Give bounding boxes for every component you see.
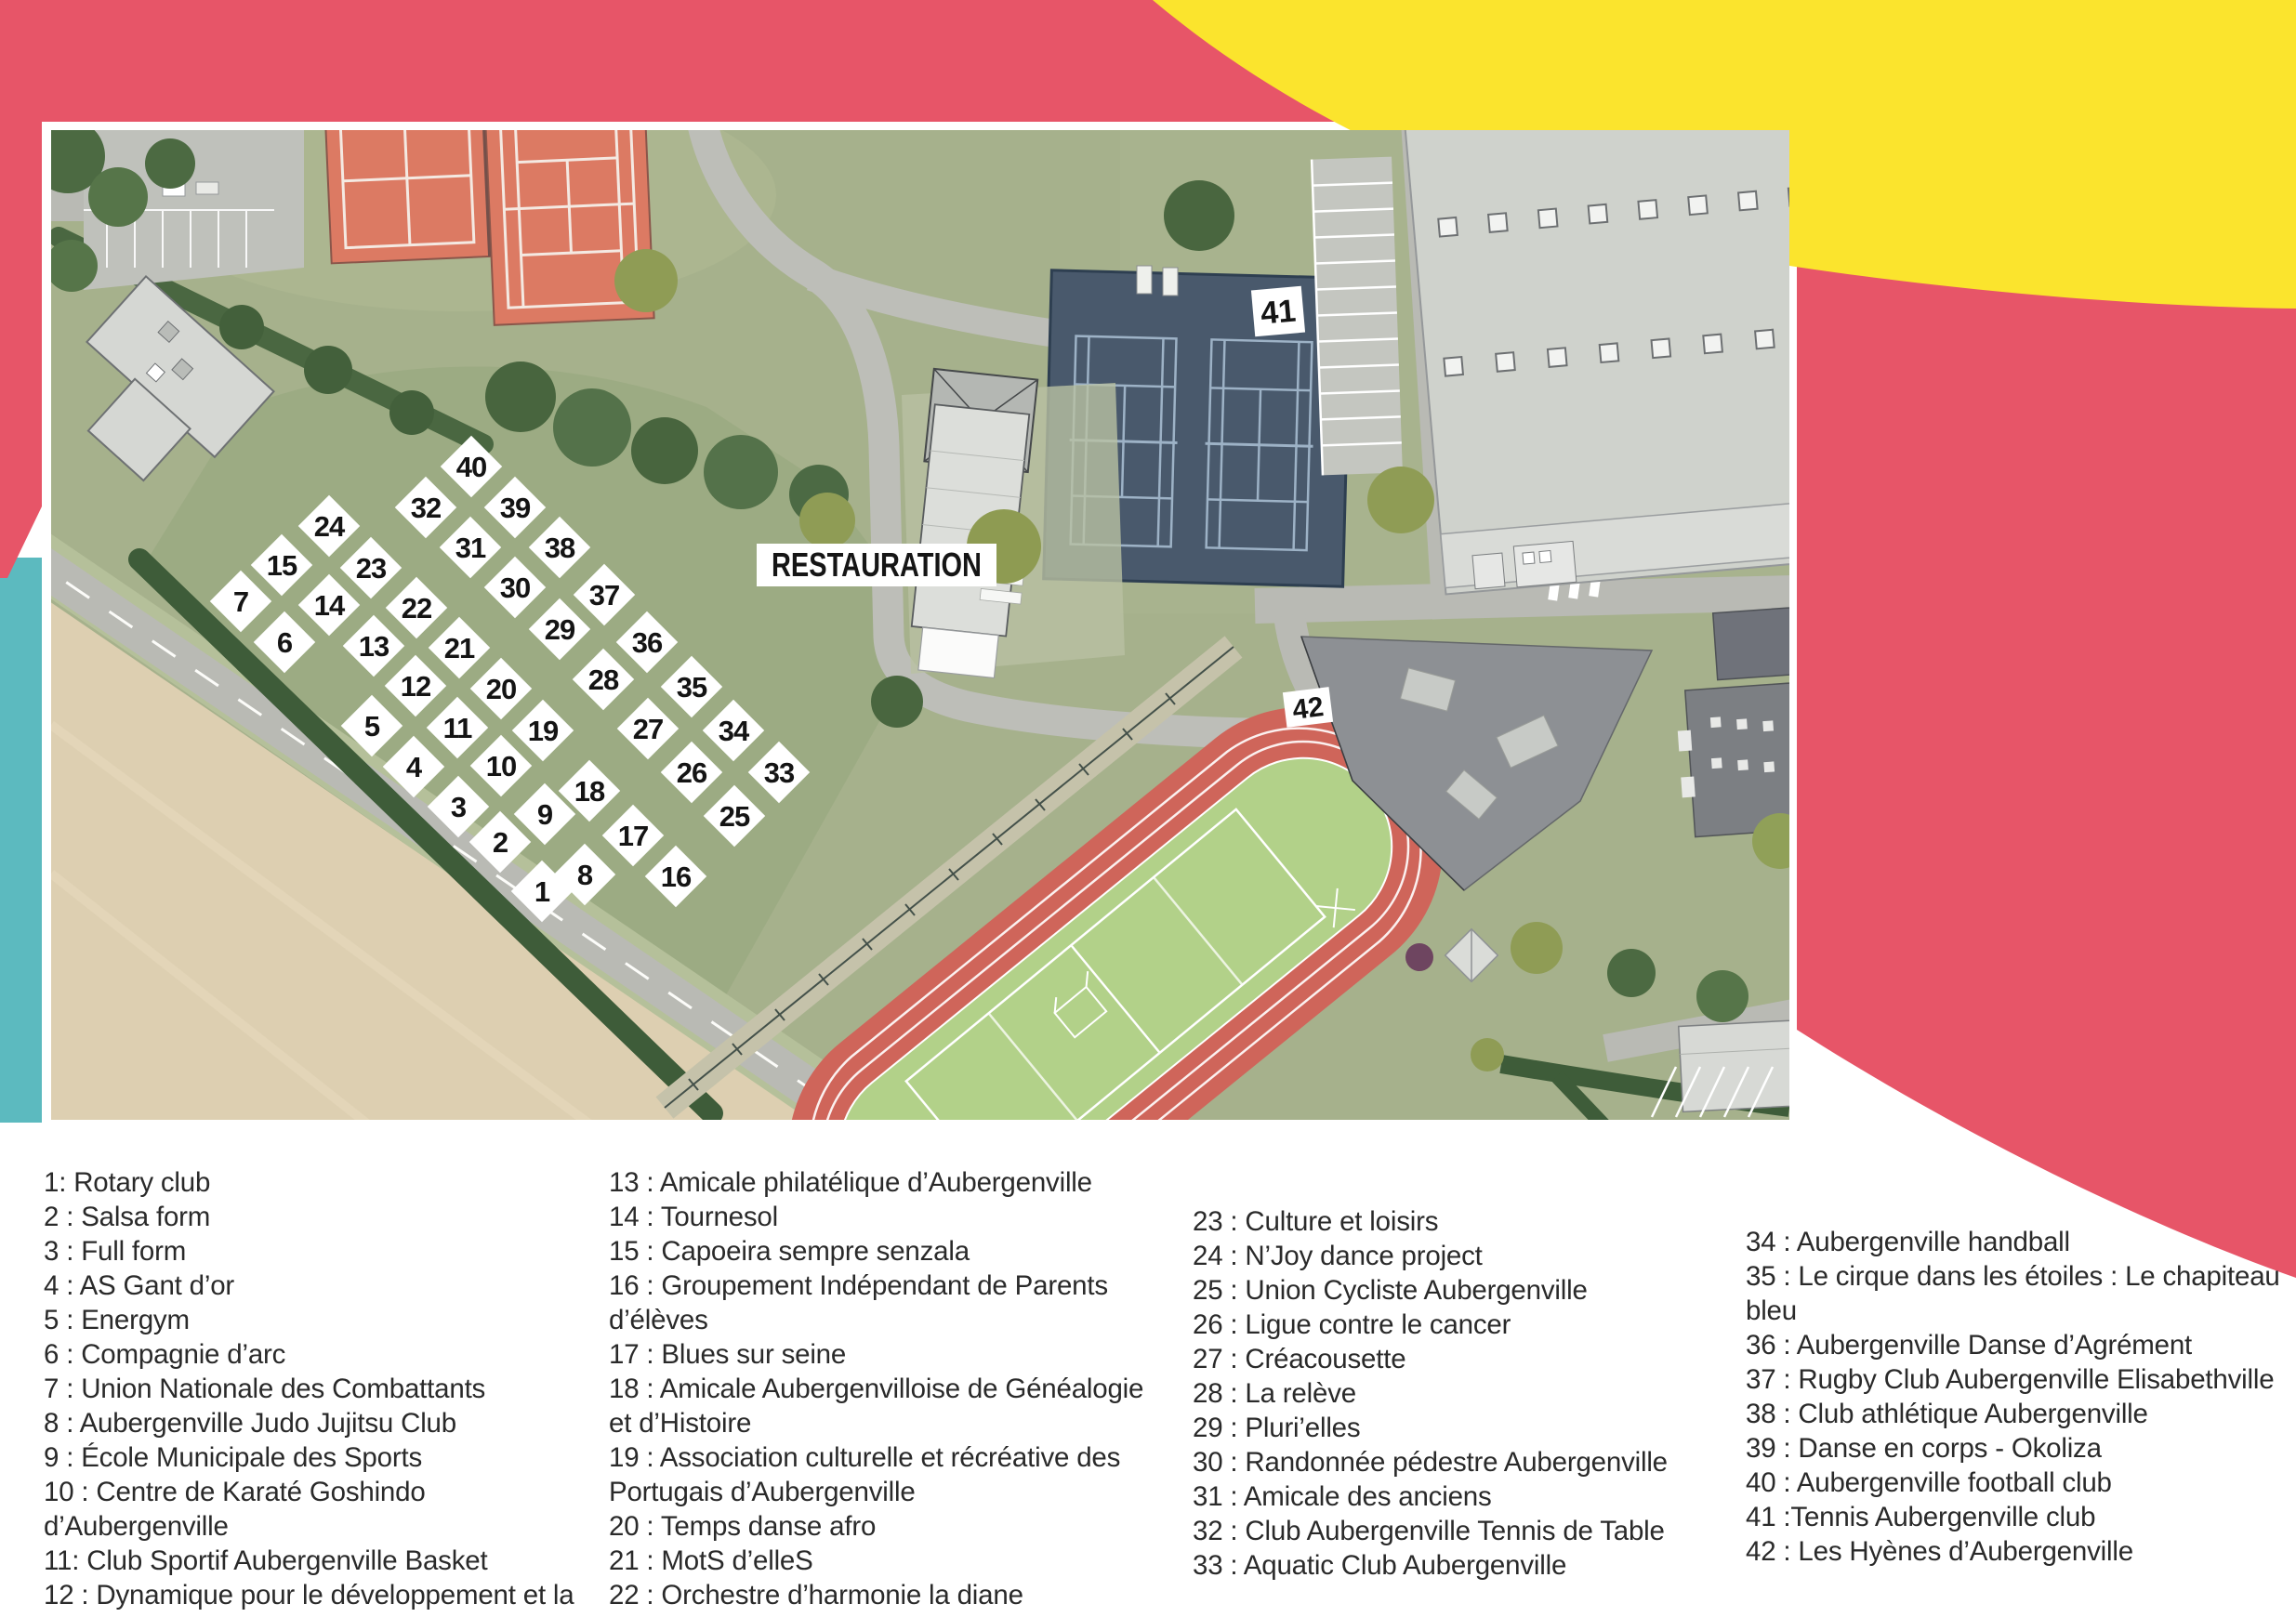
legend-item: 42 : Les Hyènes d’Aubergenville [1746, 1534, 2287, 1569]
legend-item: 11: Club Sportif Aubergenville Basket [44, 1544, 601, 1578]
legend-item: 28 : La relève [1193, 1376, 1699, 1411]
legend-item: 7 : Union Nationale des Combattants [44, 1372, 601, 1406]
legend-item: 29 : Pluri’elles [1193, 1411, 1699, 1445]
legend-item: 12 : Dynamique pour le développement et … [44, 1578, 601, 1617]
legend-column-2: 13 : Amicale philatélique d’Aubergenvill… [609, 1165, 1167, 1612]
legend-column-3: 23 : Culture et loisirs24 : N’Joy dance … [1193, 1204, 1699, 1583]
legend-item: 26 : Ligue contre le cancer [1193, 1308, 1699, 1342]
legend-item: 38 : Club athlétique Aubergenville [1746, 1397, 2287, 1431]
legend-item: 40 : Aubergenville football club [1746, 1466, 2287, 1500]
legend-item: 10 : Centre de Karaté Goshindo d’Auberge… [44, 1475, 601, 1544]
legend-item: 4 : AS Gant d’or [44, 1269, 601, 1303]
legend-item: 2 : Salsa form [44, 1200, 601, 1234]
legend-item: 24 : N’Joy dance project [1193, 1239, 1699, 1273]
legend-item: 23 : Culture et loisirs [1193, 1204, 1699, 1239]
legend-item: 36 : Aubergenville Danse d’Agrément [1746, 1328, 2287, 1362]
legend-item: 6 : Compagnie d’arc [44, 1337, 601, 1372]
legend-item: 39 : Danse en corps - Okoliza [1746, 1431, 2287, 1466]
legend-item: 14 : Tournesol [609, 1200, 1167, 1234]
legend-item: 17 : Blues sur seine [609, 1337, 1167, 1372]
legend-item: 22 : Orchestre d’harmonie la diane [609, 1578, 1167, 1612]
legend-item: 1: Rotary club [44, 1165, 601, 1200]
legend-item: 41 :Tennis Aubergenville club [1746, 1500, 2287, 1534]
legend-item: 25 : Union Cycliste Aubergenville [1193, 1273, 1699, 1308]
legend-item: 8 : Aubergenville Judo Jujitsu Club [44, 1406, 601, 1440]
legend-item: 3 : Full form [44, 1234, 601, 1269]
legend-column-1: 1: Rotary club2 : Salsa form3 : Full for… [44, 1165, 601, 1617]
legend-item: 31 : Amicale des anciens [1193, 1479, 1699, 1514]
legend-item: 30 : Randonnée pédestre Aubergenville [1193, 1445, 1699, 1479]
legend: 1: Rotary club2 : Salsa form3 : Full for… [0, 0, 2296, 1617]
legend-item: 15 : Capoeira sempre senzala [609, 1234, 1167, 1269]
legend-item: 18 : Amicale Aubergenvilloise de Généalo… [609, 1372, 1167, 1440]
legend-item: 37 : Rugby Club Aubergenville Elisabethv… [1746, 1362, 2287, 1397]
legend-item: 21 : MotS d’elleS [609, 1544, 1167, 1578]
legend-item: 33 : Aquatic Club Aubergenville [1193, 1548, 1699, 1583]
legend-item: 13 : Amicale philatélique d’Aubergenvill… [609, 1165, 1167, 1200]
legend-item: 5 : Energym [44, 1303, 601, 1337]
page: RESTAURATION 41 42 123456789101112131415… [0, 0, 2296, 1617]
legend-item: 34 : Aubergenville handball [1746, 1225, 2287, 1259]
legend-item: 16 : Groupement Indépendant de Parents d… [609, 1269, 1167, 1337]
legend-item: 20 : Temps danse afro [609, 1509, 1167, 1544]
legend-column-4: 34 : Aubergenville handball35 : Le cirqu… [1746, 1225, 2287, 1569]
legend-item: 27 : Créacousette [1193, 1342, 1699, 1376]
legend-item: 9 : École Municipale des Sports [44, 1440, 601, 1475]
legend-item: 19 : Association culturelle et récréativ… [609, 1440, 1167, 1509]
legend-item: 35 : Le cirque dans les étoiles : Le cha… [1746, 1259, 2287, 1328]
legend-item: 32 : Club Aubergenville Tennis de Table [1193, 1514, 1699, 1548]
